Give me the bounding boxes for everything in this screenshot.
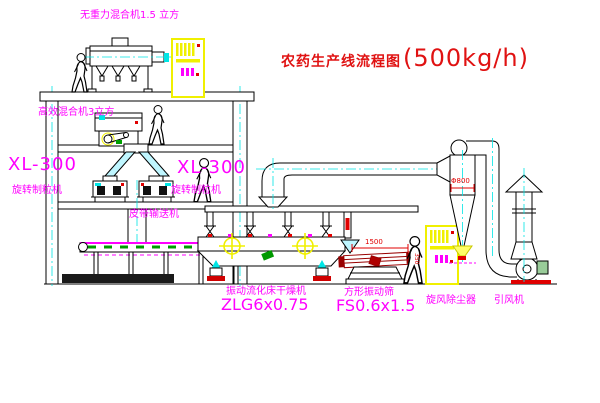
worker-figure-level2 [149,106,164,145]
label-belt-conveyor: 皮带输送机 [129,210,179,221]
title-text: 农药生产线流程图 [281,51,401,71]
label-granulator-right-model: XL-300 [177,159,246,178]
production-line-flow-diagram: 农药生产线流程图 (500kg/h) 无重力混合机1.5 立方 高效混合机3立方… [0,0,600,403]
label-high-eff-mixer: 高效混合机3立方 [38,108,114,119]
title-capacity: (500kg/h) [403,44,529,72]
y-splitter-chute [105,152,169,176]
label-top-mixer: 无重力混合机1.5 立方 [80,11,179,22]
exhaust-duct [256,156,455,210]
dimension-screen-length: 1500 [365,239,383,246]
control-cabinet-ground [426,226,458,284]
control-cabinet-upper [172,39,204,97]
worker-figure-roof [72,54,87,93]
diagram-title: 农药生产线流程图 (500kg/h) [281,44,529,72]
granulator-right [137,176,175,202]
label-fan: 引风机 [494,296,524,307]
gravity-free-mixer [84,38,172,92]
dryer-spring-hangers [204,212,332,237]
dimension-screen-height: 350 [413,253,419,264]
label-granulator-left-model: XL-300 [8,156,77,175]
cyclone-separator [449,138,517,277]
granulator-left [91,176,129,202]
dimension-cyclone-diameter: Φ800 [451,178,470,185]
label-granulator-right-name: 旋转制粒机 [171,186,221,197]
label-cyclone: 旋风除尘器 [426,296,476,307]
label-dryer-model: ZLG6x0.75 [221,297,309,314]
label-screen-model: FS0.6x1.5 [336,298,415,315]
label-granulator-left-name: 旋转制粒机 [12,186,62,197]
